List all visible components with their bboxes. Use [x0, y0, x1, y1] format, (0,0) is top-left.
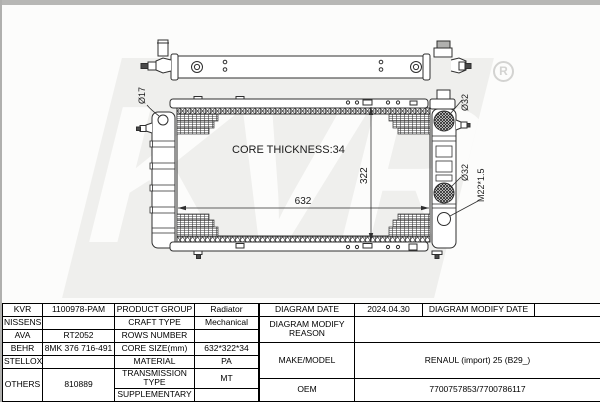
port-mid-right-label: Ø32 [460, 164, 470, 181]
cell-brand-behr: BEHR [3, 343, 43, 356]
table-row: BEHR 8MK 376 716-491 CORE SIZE(mm) 632*3… [3, 343, 259, 356]
cell-kvr-number: 1100978-PAM [43, 304, 115, 317]
table-row: DIAGRAM MODIFY REASON [260, 317, 600, 342]
dimension-height: 322 [359, 107, 373, 241]
table-row: KVR 1100978-PAM PRODUCT GROUP Radiator [3, 304, 259, 317]
front-view: 632 322 CORE THICKNESS:34 Ø17 Ø32 Ø32 M [137, 87, 487, 259]
core-top-band [177, 108, 430, 114]
top-view-left-nozzle [156, 58, 171, 73]
mounting-feet [194, 251, 442, 259]
cell-rows-number-value [195, 330, 259, 343]
cell-ava-number: RT2052 [43, 330, 115, 343]
table-row: NISSENS CRAFT TYPE Mechanical [3, 317, 259, 330]
cell-product-group-label: PRODUCT GROUP [115, 304, 195, 317]
cell-behr-number: 8MK 376 716-491 [43, 343, 115, 356]
port-mid-right [434, 183, 454, 203]
cell-others-number: 810889 [43, 369, 115, 402]
radiator-core [177, 108, 430, 242]
cell-brand-others: OTHERS [3, 369, 43, 402]
left-tank [137, 112, 176, 248]
cell-material-label: MATERIAL [115, 356, 195, 369]
cell-stellox-number [43, 356, 115, 369]
table-row: AVA RT2052 ROWS NUMBER [3, 330, 259, 343]
top-view-right-endplate [423, 54, 430, 80]
kvr-radiator-diagram-page: KVR R [0, 0, 600, 402]
cell-material-value: PA [195, 356, 259, 369]
drain-plug [438, 213, 451, 226]
cell-supplementary-value [195, 388, 259, 401]
cell-transmission-type-label: TRANSMISSION TYPE [115, 369, 195, 389]
cell-brand-ava: AVA [3, 330, 43, 343]
top-view-left-thread-tip [141, 64, 148, 69]
radiator-technical-drawing: 632 322 CORE THICKNESS:34 Ø17 Ø32 Ø32 M [0, 0, 600, 300]
table-row: STELLOX MATERIAL PA [3, 356, 259, 369]
cell-brand-stellox: STELLOX [3, 356, 43, 369]
top-view-right-thread-tip [465, 64, 471, 69]
cell-core-size-value: 632*322*34 [195, 343, 259, 356]
width-dim-label: 632 [295, 196, 312, 207]
top-view [141, 40, 471, 80]
cell-brand-kvr: KVR [3, 304, 43, 317]
fin-patch-bottom-right [389, 214, 430, 236]
fin-patch-top-left [177, 114, 218, 134]
cell-diagram-modify-date-label: DIAGRAM MODIFY DATE [423, 304, 535, 317]
cell-nissens-number [43, 317, 115, 330]
cell-rows-number-label: ROWS NUMBER [115, 330, 195, 343]
table-row: MAKE/MODEL RENAUL (import) 25 (B29_) [260, 342, 600, 379]
cell-diagram-modify-date-value [535, 304, 600, 317]
height-dim-label: 322 [359, 167, 370, 184]
cell-modify-reason-value [355, 317, 600, 342]
top-view-tank-bar [172, 56, 428, 78]
filler-neck-knob [437, 90, 450, 99]
fin-patch-bottom-left [177, 214, 218, 236]
top-view-left-stub [158, 40, 168, 56]
spec-table-right: DIAGRAM DATE 2024.04.30 DIAGRAM MODIFY D… [259, 303, 600, 402]
core-bottom-band [177, 236, 430, 242]
cell-supplementary-label: SUPPLEMENTARY [115, 388, 195, 401]
dimension-width: 632 [178, 196, 429, 210]
core-thickness-label: CORE THICKNESS:34 [232, 144, 345, 156]
filler-neck-cap [430, 99, 455, 109]
cell-brand-nissens: NISSENS [3, 317, 43, 330]
cell-craft-type-label: CRAFT TYPE [115, 317, 195, 330]
cell-diagram-date-value: 2024.04.30 [355, 304, 423, 317]
cell-core-size-label: CORE SIZE(mm) [115, 343, 195, 356]
cell-oem-value: 7700757853/7700786117 [355, 379, 600, 401]
cell-modify-reason-label: DIAGRAM MODIFY REASON [260, 317, 355, 342]
table-row: OTHERS 810889 TRANSMISSION TYPE MT [3, 369, 259, 389]
table-row: OEM 7700757853/7700786117 [260, 379, 600, 401]
cell-transmission-type-value: MT [195, 369, 259, 389]
fin-patch-top-right [389, 114, 430, 134]
spec-table-left: KVR 1100978-PAM PRODUCT GROUP Radiator N… [2, 303, 259, 402]
inlet-left-label: Ø17 [137, 87, 147, 104]
cell-product-group-value: Radiator [195, 304, 259, 317]
cell-make-model-label: MAKE/MODEL [260, 342, 355, 379]
cell-diagram-date-label: DIAGRAM DATE [260, 304, 355, 317]
cell-craft-type-value: Mechanical [195, 317, 259, 330]
outlet-port-top-right [434, 111, 454, 131]
table-row: DIAGRAM DATE 2024.04.30 DIAGRAM MODIFY D… [260, 304, 600, 317]
spec-table: KVR 1100978-PAM PRODUCT GROUP Radiator N… [2, 303, 599, 402]
top-view-filler-flange [434, 48, 452, 57]
top-view-left-endplate [171, 54, 178, 80]
top-view-filler-knob [437, 41, 450, 48]
cell-oem-label: OEM [260, 379, 355, 401]
port-top-right-label: Ø32 [460, 94, 470, 111]
cell-make-model-value: RENAUL (import) 25 (B29_) [355, 342, 600, 379]
drain-thread-label: M22*1.5 [476, 168, 486, 202]
